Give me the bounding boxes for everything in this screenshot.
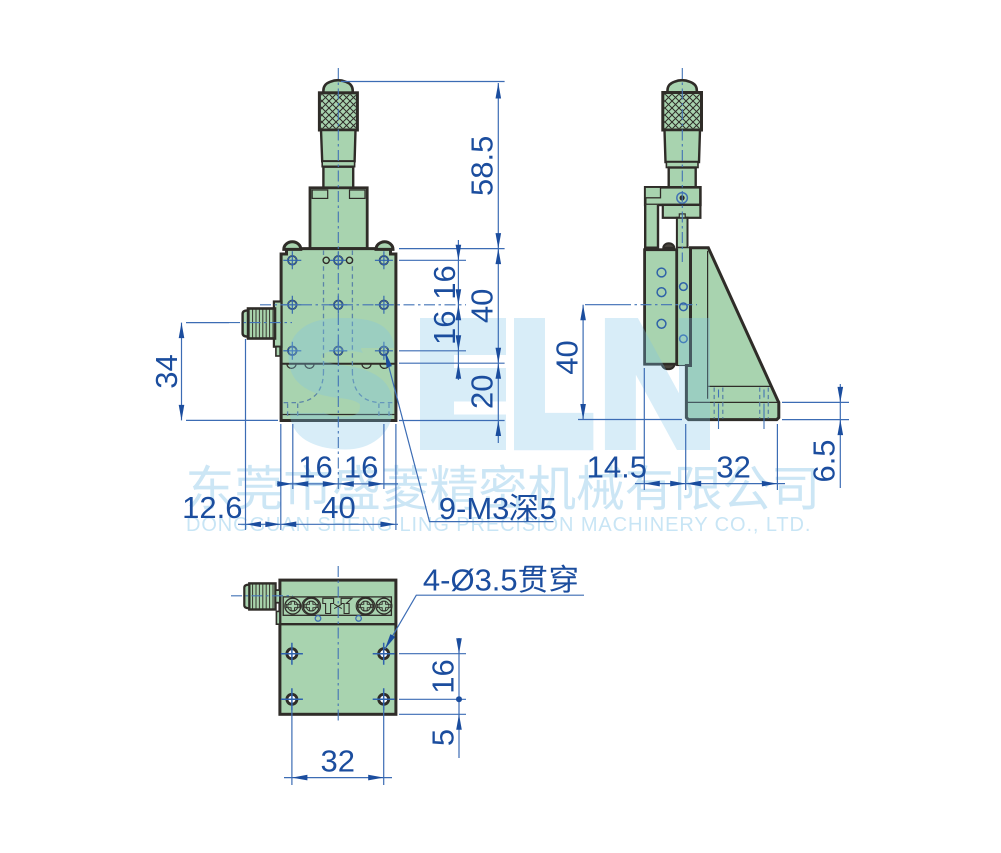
svg-text:16: 16 <box>427 265 462 299</box>
svg-text:14.5: 14.5 <box>587 449 647 484</box>
svg-text:12.6: 12.6 <box>182 490 242 525</box>
svg-text:32: 32 <box>716 449 750 484</box>
svg-text:5: 5 <box>426 729 461 746</box>
svg-text:20: 20 <box>465 375 500 409</box>
svg-text:34: 34 <box>149 354 184 388</box>
svg-text:16: 16 <box>298 450 332 485</box>
svg-text:40: 40 <box>550 340 585 374</box>
svg-text:40: 40 <box>465 289 500 323</box>
svg-text:40: 40 <box>321 490 355 525</box>
svg-text:5: 5 <box>540 491 557 526</box>
svg-text:58.5: 58.5 <box>465 136 500 196</box>
svg-text:9-M3: 9-M3 <box>439 491 510 526</box>
svg-text:16: 16 <box>427 311 462 345</box>
svg-text:32: 32 <box>321 743 355 778</box>
svg-text:6.5: 6.5 <box>807 439 842 482</box>
svg-text:4-Ø3.5: 4-Ø3.5 <box>423 562 518 597</box>
svg-text:16: 16 <box>426 659 461 693</box>
svg-text:16: 16 <box>344 450 378 485</box>
